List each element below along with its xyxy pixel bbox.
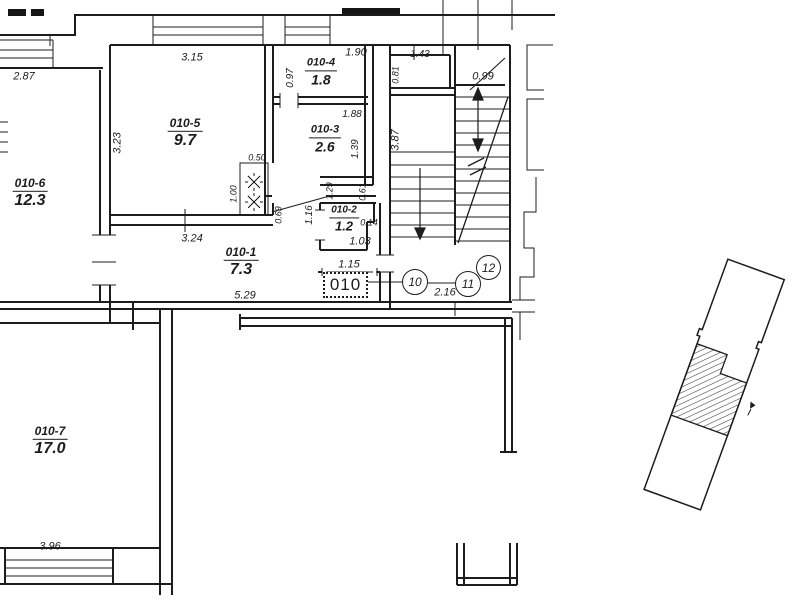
- dim-label-0.97: 0.97: [286, 68, 296, 87]
- dim-label-3.15: 3.15: [181, 53, 202, 64]
- window-left-edge: [0, 122, 8, 152]
- number-circle-11: 11: [455, 271, 481, 297]
- dim-label-1.43: 1.43: [410, 50, 429, 60]
- room-area: 9.7: [168, 131, 203, 149]
- dim-label-1.00: 1.00: [230, 185, 239, 203]
- room-area: 1.2: [329, 218, 359, 233]
- room-label-010-1: 010-1 7.3: [224, 246, 259, 278]
- window-010-7: [5, 560, 113, 576]
- room-label-010-6: 010-6 12.3: [13, 177, 48, 209]
- window-top-left: [0, 36, 53, 68]
- outer-wall-top: [0, 15, 555, 35]
- number-circle-12: 12: [476, 255, 501, 280]
- neighbor-wall-right: [512, 45, 553, 340]
- room-area: 1.8: [305, 71, 337, 87]
- room-area: 12.3: [13, 191, 48, 209]
- room-id: 010-3: [309, 124, 341, 138]
- floor-plan-sheet: 010-1 7.3 010-2 1.2 010-3 2.6 010-4 1.8 …: [0, 0, 800, 600]
- dim-label-0.61: 0.61: [359, 183, 368, 201]
- dim-label-1.88: 1.88: [342, 110, 361, 120]
- dim-label-1.15: 1.15: [338, 260, 359, 271]
- dim-label-3.87: 3.87: [391, 129, 402, 150]
- stair-break-diagonal: [458, 97, 508, 243]
- room-area: 17.0: [33, 439, 68, 457]
- dim-label-1.16: 1.16: [305, 205, 315, 224]
- dim-label-0.81: 0.81: [392, 66, 401, 84]
- plan-linework: [0, 0, 800, 600]
- dim-label-1.03: 1.03: [349, 237, 370, 248]
- door-ticks-stair: [376, 255, 394, 272]
- dim-label-3.96: 3.96: [39, 542, 60, 553]
- room-id: 010-2: [329, 205, 359, 218]
- stove-burner-icon: [245, 173, 263, 211]
- room-label-010-5: 010-5 9.7: [168, 117, 203, 149]
- site-unit-hatch: [671, 344, 753, 436]
- entrance-unit-number-box: 010: [323, 272, 368, 298]
- door-ticks-010-6: [92, 235, 116, 285]
- dim-label-3.23: 3.23: [113, 132, 124, 153]
- dim-label-0.99: 0.99: [472, 72, 493, 83]
- dim-label-1.39: 1.39: [351, 139, 361, 158]
- window-band-top: [153, 15, 330, 45]
- stair-treads-left: [390, 152, 455, 237]
- room-id: 010-5: [168, 117, 203, 132]
- room-label-010-3: 010-3 2.6: [309, 124, 341, 153]
- dim-label-1.90: 1.90: [345, 48, 366, 59]
- dim-label-2.16: 2.16: [434, 288, 455, 299]
- door-ticks-010-2: [315, 210, 325, 240]
- room-010-7-walls: [0, 323, 172, 584]
- dim-label-1.29: 1.29: [326, 182, 335, 200]
- room-area: 7.3: [224, 260, 259, 278]
- site-marker-tail: [748, 409, 751, 416]
- room-id: 010-7: [33, 425, 68, 440]
- dim-label-0.50: 0.50: [248, 154, 266, 163]
- lower-right-room-walls: [110, 302, 517, 585]
- room-label-010-4: 010-4 1.8: [305, 57, 337, 86]
- dim-label-0.69: 0.69: [275, 206, 284, 224]
- site-plan: [641, 258, 799, 515]
- number-circle-10: 10: [402, 269, 428, 295]
- room-label-010-2: 010-2 1.2: [329, 205, 359, 232]
- walls-layer: [0, 15, 555, 595]
- room-id: 010-1: [224, 246, 259, 261]
- room-area: 2.6: [309, 138, 341, 154]
- party-wall: [160, 310, 172, 595]
- site-location-marker: [748, 401, 756, 410]
- room-id: 010-6: [13, 177, 48, 192]
- stair-arrow-up-head: [473, 88, 483, 100]
- dim-label-0.14: 0.14: [360, 219, 378, 228]
- door-ticks-010-4: [280, 93, 298, 108]
- dim-label-2.87: 2.87: [13, 72, 34, 83]
- dim-label-3.24: 3.24: [181, 234, 202, 245]
- room-id: 010-4: [305, 57, 337, 71]
- room-label-010-7: 010-7 17.0: [33, 425, 68, 457]
- dim-label-5.29: 5.29: [234, 291, 255, 302]
